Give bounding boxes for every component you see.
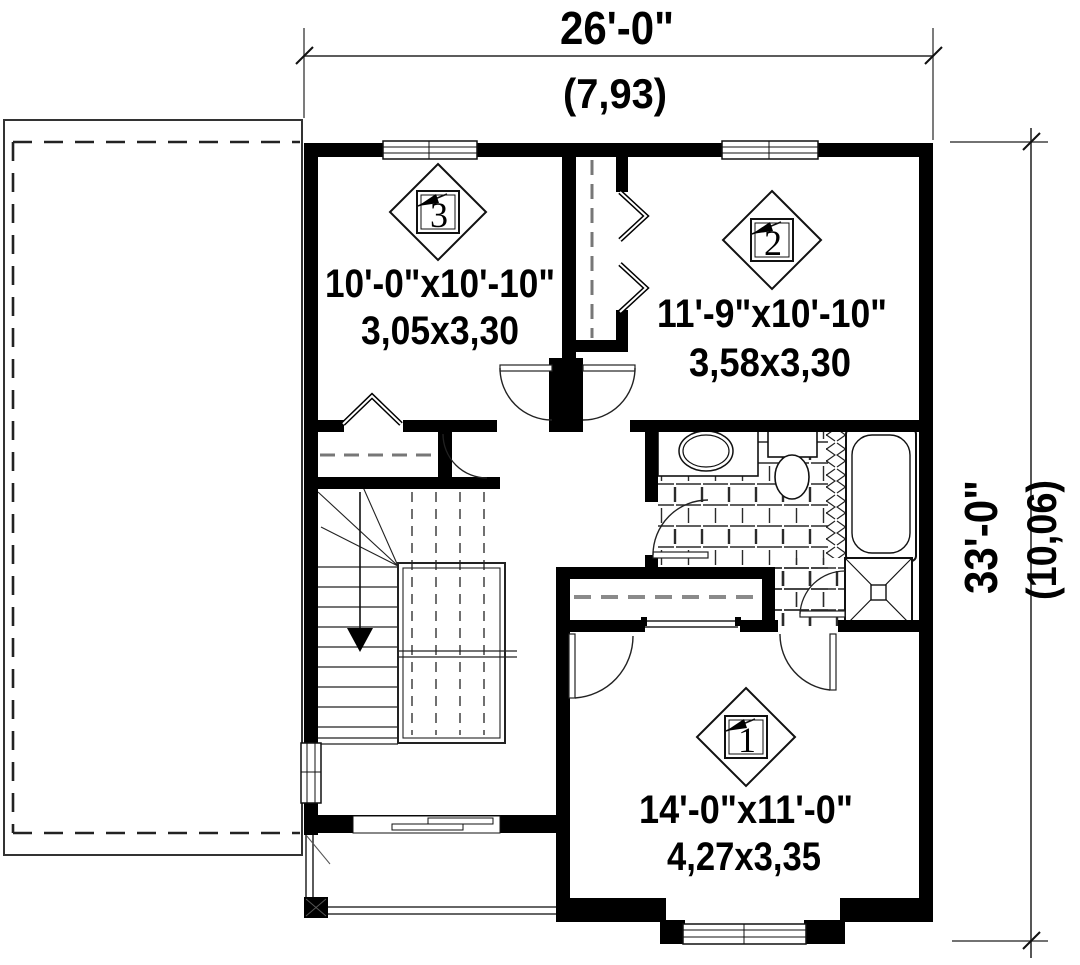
stair-arrow-head (347, 628, 373, 652)
bifold-bedroom2-lower (620, 264, 646, 312)
bedroom2-size-metric: 3,58x3,30 (689, 341, 851, 385)
garage-roof-outline (4, 120, 302, 855)
window-left (301, 743, 321, 803)
floor-plan-canvas: 3 2 1 10'-0"x10'-10" 3,05x3,30 11'-9"x10… (0, 0, 1080, 965)
room-marker-2: 2 (723, 191, 821, 289)
bay-wall-left (660, 920, 685, 944)
door-bedroom3 (500, 365, 552, 420)
stair-winders (318, 487, 398, 566)
bedroom2-size-imperial: 11'-9"x10'-10" (657, 292, 887, 336)
bay-wall-right (804, 920, 845, 944)
wall-bathroom-top (630, 420, 933, 432)
dim-top-metric: (7,93) (563, 70, 667, 117)
door-bedroom1-right (780, 634, 836, 690)
tiled-wall-hatch (826, 430, 845, 558)
window-bedroom2 (722, 141, 818, 159)
dim-right-imperial: 33'-0" (955, 480, 1007, 594)
room-number: 2 (764, 223, 782, 263)
floor-plan-drawing: 3 2 1 10'-0"x10'-10" 3,05x3,30 11'-9"x10… (0, 0, 1080, 965)
wall-door-stub (549, 358, 583, 432)
wall-bottom-left-of-bay (556, 898, 666, 922)
door-bedroom1-left (569, 634, 633, 698)
bedroom3-size-imperial: 10'-0"x10'-10" (325, 262, 555, 306)
dim-right-metric: (10,06) (1018, 480, 1065, 600)
shower (845, 558, 912, 626)
bedroom1-size-imperial: 14'-0"x11'-0" (639, 788, 853, 832)
bedroom3-size-metric: 3,05x3,30 (361, 309, 519, 353)
door-bedroom2 (583, 365, 635, 420)
window-bay (683, 924, 806, 944)
bathtub (846, 429, 916, 561)
wall-stairwell (311, 477, 500, 489)
window-porch-sliding (353, 816, 500, 833)
room-number: 3 (430, 195, 448, 235)
wall-closet-top (556, 567, 775, 579)
dimension-top: 26'-0" (7,93) (296, 2, 942, 140)
stair-railing (398, 563, 505, 743)
dimension-right: 33'-0" (10,06) (950, 128, 1065, 958)
dim-top-imperial: 26'-0" (560, 2, 674, 54)
bifold-bedroom2-upper (620, 192, 646, 240)
wall-right (919, 143, 933, 919)
window-bedroom3 (383, 141, 477, 159)
room-marker-3: 3 (390, 164, 486, 260)
bifold-bedroom3 (343, 396, 401, 424)
linen-closet (562, 573, 768, 627)
porch (304, 833, 556, 918)
wall-bottom-right (840, 898, 933, 922)
vanity-sink (658, 428, 758, 476)
room-number: 1 (738, 720, 756, 760)
bifold-doors (343, 192, 646, 424)
room-marker-1: 1 (697, 688, 795, 786)
bedroom1-size-metric: 4,27x3,35 (667, 835, 821, 879)
stair-dashed-flight (412, 492, 484, 735)
staircase (311, 487, 517, 744)
